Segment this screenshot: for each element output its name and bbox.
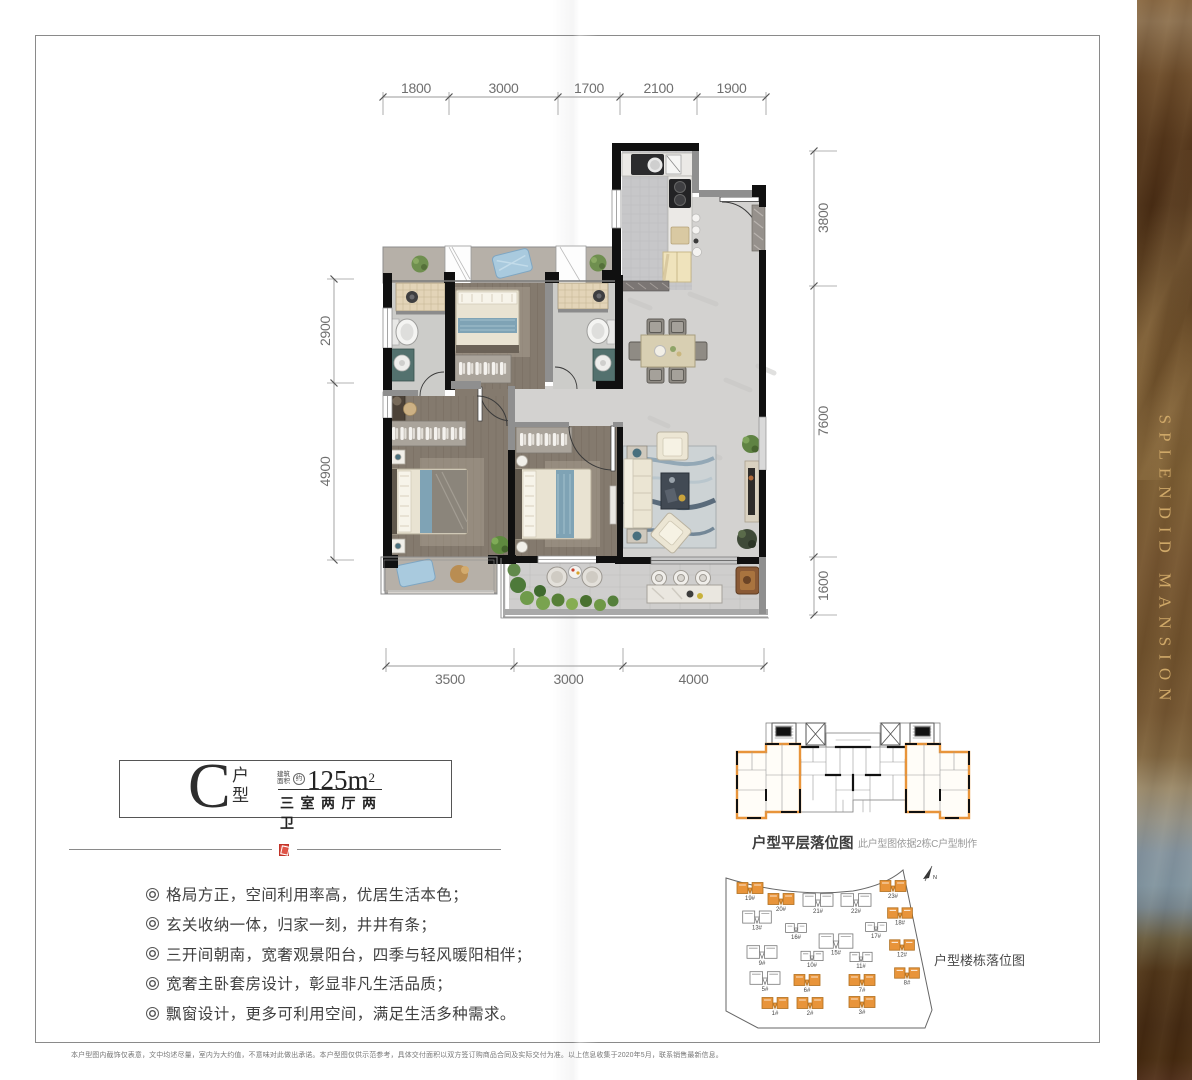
svg-text:22#: 22# xyxy=(851,909,862,915)
svg-text:7600: 7600 xyxy=(815,406,831,436)
svg-text:1600: 1600 xyxy=(815,571,831,601)
svg-text:1700: 1700 xyxy=(574,80,604,96)
svg-text:17#: 17# xyxy=(871,934,882,940)
svg-text:2900: 2900 xyxy=(317,316,333,346)
svg-text:5#: 5# xyxy=(762,987,769,993)
svg-text:户型平层落位图: 户型平层落位图 xyxy=(752,834,854,852)
svg-text:19#: 19# xyxy=(745,896,756,902)
svg-text:1800: 1800 xyxy=(401,80,431,96)
svg-text:11#: 11# xyxy=(856,964,866,970)
svg-text:9#: 9# xyxy=(759,961,766,967)
svg-text:户型楼栋落位图: 户型楼栋落位图 xyxy=(934,953,1025,968)
svg-text:4900: 4900 xyxy=(317,456,333,486)
svg-text:12#: 12# xyxy=(897,953,908,959)
svg-text:N: N xyxy=(933,875,937,881)
svg-text:6#: 6# xyxy=(804,988,811,994)
svg-text:15#: 15# xyxy=(831,951,842,957)
svg-text:10#: 10# xyxy=(807,963,818,969)
svg-text:13#: 13# xyxy=(752,926,763,932)
svg-text:21#: 21# xyxy=(813,909,824,915)
svg-text:7#: 7# xyxy=(859,988,866,994)
svg-text:1900: 1900 xyxy=(717,80,747,96)
svg-text:2#: 2# xyxy=(807,1011,814,1017)
svg-text:3500: 3500 xyxy=(435,671,465,687)
svg-text:18#: 18# xyxy=(895,921,906,927)
svg-text:此户型图依据2栋C户型制作: 此户型图依据2栋C户型制作 xyxy=(858,837,977,850)
svg-text:3800: 3800 xyxy=(815,203,831,233)
svg-text:3000: 3000 xyxy=(554,671,584,687)
svg-text:4000: 4000 xyxy=(679,671,709,687)
svg-text:16#: 16# xyxy=(791,935,802,941)
svg-text:8#: 8# xyxy=(904,981,911,987)
svg-text:1#: 1# xyxy=(772,1011,779,1017)
svg-text:2100: 2100 xyxy=(644,80,674,96)
svg-text:3000: 3000 xyxy=(489,80,519,96)
svg-text:23#: 23# xyxy=(888,894,899,900)
svg-text:3#: 3# xyxy=(859,1010,866,1016)
svg-text:20#: 20# xyxy=(776,907,787,913)
